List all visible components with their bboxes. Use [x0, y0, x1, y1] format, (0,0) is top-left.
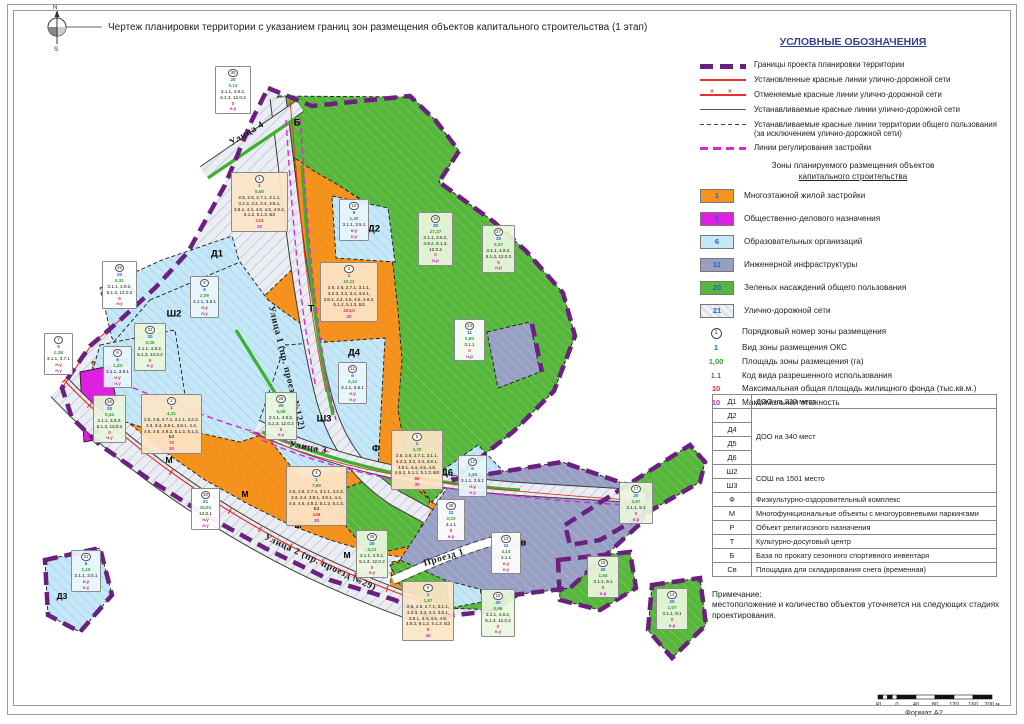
zone-callout: 115,502.5, 2.6, 2.7.1, 3.1.1, 3.2.3, 3.3…: [231, 172, 288, 232]
zone-callout: 29110,233.1.10н.р: [437, 499, 465, 541]
callout-max-floors: н.р: [439, 534, 463, 540]
dark-solid-line-sample: [700, 105, 746, 115]
callout-number: 5: [412, 433, 422, 442]
object-code: М: [713, 507, 752, 521]
legend-line-item: Линии регулирования застройки: [700, 143, 1006, 153]
legend: УСЛОВНЫЕ ОБОЗНАЧЕНИЯ Границы проекта пла…: [700, 36, 1006, 412]
legend-symbol: 1: [700, 343, 732, 352]
zone-label: Д4: [348, 348, 360, 359]
zone-swatch-20: 20: [700, 281, 734, 295]
callout-max-floors: н.у: [493, 567, 519, 573]
legend-symbol: 10: [700, 384, 732, 393]
zone-callout: 961,333.1.1, 3.5.1н.ун.у: [103, 346, 132, 388]
object-code: Р: [713, 521, 752, 535]
table-row: Ш2СОШ на 1501 место: [713, 465, 997, 479]
callout-max-floors: 30: [288, 518, 345, 524]
table-row: ТКультурно-досуговый центр: [713, 535, 997, 549]
object-code: Ш2: [713, 465, 752, 479]
callout-number: 22: [145, 326, 155, 335]
legend-line-label: Устанавливаемые красные линии улично-дор…: [754, 105, 960, 114]
callout-max-floors: н.у: [358, 570, 386, 576]
object-code: Ф: [713, 493, 752, 507]
object-desc: Объект религиозного назначения: [752, 521, 997, 535]
callout-number: 18: [431, 215, 441, 224]
callout-number: 19: [493, 592, 503, 601]
callout-number: 12: [468, 458, 478, 467]
zone-swatch-21: 21: [700, 304, 734, 318]
callout-use-codes: 2.5, 2.6, 2.7.1, 3.1.1, 3.2.3, 3.3, 3.4,…: [393, 453, 441, 477]
zone-callout: 13114,143.1.1н.ун.у: [491, 532, 521, 574]
object-desc: Площадка для складирования снега (времен…: [752, 563, 997, 577]
object-desc: ДОО на 340 мест: [752, 409, 997, 465]
callout-number: 3: [344, 265, 354, 274]
north-arrow-icon: N S: [48, 5, 102, 53]
callout-max-floors: н.у: [483, 629, 513, 635]
legend-zone-item: 5Общественно-делового назначения: [700, 212, 1006, 226]
zone-swatch-11: 11: [700, 258, 734, 272]
legend-line-label: Устанавливаемые красные линии территории…: [754, 120, 1006, 138]
zone-callout: 611,972.5, 2.6, 2.7.1, 3.1.1, 3.2.3, 3.3…: [402, 581, 454, 641]
callout-use-codes: 3.1.1, 3.6.2, 4.9.2, 5.1.3, 12.0.2: [420, 235, 451, 253]
legend-symbol-item: 1Вид зоны размещения ОКС: [700, 343, 1006, 353]
legend-zone-item: 6Образовательных организаций: [700, 235, 1006, 249]
zone-callout: 202115,8112.0.1н.ун.у: [191, 488, 220, 530]
callout-number: 15: [598, 559, 608, 568]
callout-max-floors: н.р: [589, 591, 617, 597]
callout-number: 16: [105, 398, 115, 407]
object-code: Д4: [713, 423, 752, 437]
legend-symbol-label: Максимальная общая площадь жилищного фон…: [742, 384, 976, 394]
object-code: Д1: [713, 395, 752, 409]
zone-callout: 28200,123.1.1, 4.9.2, 5.1.3, 12.0.20н.у: [356, 530, 388, 578]
legend-line-label: Установленные красные линии улично-дорож…: [754, 75, 951, 84]
zone-callout: 417,892.5, 2.6, 2.7.1, 3.1.1, 3.2.3, 3.3…: [286, 466, 347, 526]
zone-callout: 1061,303.1.1, 3.5.1н.ун.у: [339, 199, 369, 241]
zone-label: Ф: [372, 444, 380, 455]
drawing-sheet: N S 30200,133.1.1, 4.9.2, 5.1.3, 12.0.20…: [0, 0, 1024, 724]
legend-line-item: Устанавливаемые красные линии улично-дор…: [700, 105, 1006, 115]
legend-line-item: Устанавливаемые красные линии территории…: [700, 120, 1006, 138]
callout-number: 20: [201, 491, 211, 500]
callout-max-floors: н.у: [105, 381, 130, 387]
zone-callout: 24110,603.1.10н.р: [454, 319, 485, 361]
zone-label: Ш3: [317, 414, 332, 425]
object-code: Д6: [713, 451, 752, 465]
scalebar-label: 0: [895, 702, 898, 708]
object-code: Ш3: [713, 479, 752, 493]
legend-line-item: Установленные красные линии улично-дорож…: [700, 75, 1006, 85]
zone-callout: 19200,963.1.1, 4.9.2, 5.1.3, 12.0.20н.у: [481, 589, 515, 637]
callout-max-floors: н.у: [104, 301, 135, 307]
zone-label: М: [241, 489, 248, 499]
note-text: местоположение и количество объектов уто…: [712, 600, 1002, 621]
legend-zones-subtitle: Зоны планируемого размещения объектов ка…: [700, 161, 1006, 182]
callout-use-codes: 3.1.1, 4.9.2, 5.1.3, 12.0.2: [267, 415, 295, 427]
callout-max-floors: н.у: [217, 106, 249, 112]
zone-callout: 1164,133.1.1, 3.5.1н.ун.у: [338, 362, 367, 404]
callout-max-floors: 30: [143, 446, 200, 452]
callout-max-floors: н.у: [340, 397, 365, 403]
zone-callout: 22200,353.1.1, 4.9.2, 5.1.3, 12.0.20н.у: [134, 323, 166, 371]
legend-zone-label: Общественно-делового назначения: [744, 214, 880, 223]
callout-max-floors: н.у: [95, 435, 124, 441]
legend-zone-label: Инженерной инфраструктуры: [744, 260, 857, 269]
red-cross-line-sample: ××: [700, 90, 746, 100]
callout-number: 4: [312, 469, 322, 478]
scale-bar: 4004080120160200 м: [876, 692, 1016, 712]
zone-label: М: [165, 455, 172, 465]
legend-line-label: Отменяемые красные линии улично-дорожной…: [754, 90, 942, 99]
callout-max-floors: н.у: [193, 523, 218, 529]
black-dash-line-sample: [700, 120, 746, 130]
boundary-line-sample: [700, 60, 746, 70]
table-row: СвПлощадка для складирования снега (врем…: [713, 563, 997, 577]
zone-label: Ш2: [167, 309, 182, 320]
zone-callout: 214,312.5, 2.6, 2.7.1, 3.1.1, 3.2.3, 3.3…: [141, 394, 202, 454]
legend-symbol-item: 10Максимальная общая площадь жилищного ф…: [700, 384, 1006, 394]
callout-max-floors: н.р: [420, 258, 451, 264]
callout-use-codes: 2.5, 2.6, 2.7.1, 3.1.1, 3.2.3, 3.3, 3.4,…: [288, 489, 345, 513]
callout-number: 14: [667, 591, 677, 600]
callout-use-codes: 3.1.1, 4.9.2, 5.1.3, 12.0.2: [358, 553, 386, 565]
callout-number: 13: [501, 535, 511, 544]
legend-line-label: Линии регулирования застройки: [754, 143, 871, 152]
legend-symbol: 1: [700, 327, 732, 339]
callout-use-codes: 3.1.1, 3.5.1: [460, 478, 485, 484]
callout-number: 10: [349, 202, 359, 211]
object-desc: Культурно-досуговый центр: [752, 535, 997, 549]
legend-zone-item: 11Инженерной инфраструктуры: [700, 258, 1006, 272]
magenta-dash-line-sample: [700, 143, 746, 153]
legend-line-item: ××Отменяемые красные линии улично-дорожн…: [700, 90, 1006, 100]
callout-max-floors: н.у: [73, 585, 99, 591]
callout-max-floors: н.у: [341, 234, 367, 240]
callout-number: 26: [276, 395, 286, 404]
callout-use-codes: 3.1.1, 4.9.2, 5.1.3, 12.0.2: [217, 89, 249, 101]
callout-use-codes: 2.5, 2.6, 2.7.1, 3.1.1, 3.2.3, 3.3, 3.4,…: [404, 604, 452, 628]
object-code: Д5: [713, 437, 752, 451]
zone-callout: 513,702.5, 2.6, 2.7.1, 3.1.1, 3.2.3, 3.3…: [391, 430, 443, 490]
callout-use-codes: 3.1.1, 4.9.2, 5.1.3, 12.0.2: [104, 284, 135, 296]
callout-max-floors: 20: [233, 224, 286, 230]
callout-number: 24: [465, 322, 475, 331]
zone-callout: 26200,063.1.1, 4.9.2, 5.1.3, 12.0.20н.у: [265, 392, 297, 440]
callout-max-floors: н.у: [46, 368, 71, 374]
zone-callout: 27200,373.1.1, 4.9.2, 5.1.3, 12.0.20н.р: [482, 225, 515, 273]
legend-symbol-item: 1,00Площадь зоны размещения (га): [700, 357, 1006, 367]
callout-max-floors: 30: [393, 482, 441, 488]
callout-use-codes: 3.1.1, 3.5.1: [105, 369, 130, 375]
callout-number: 17: [631, 485, 641, 494]
legend-zone-label: Зеленых насаждений общего пользования: [744, 283, 906, 292]
legend-symbol-item: 1.1Код вида разрешенного использования: [700, 371, 1006, 381]
legend-zone-items: 1Многоэтажной жилой застройки5Общественн…: [700, 189, 1006, 318]
zone-callout: 30200,133.1.1, 4.9.2, 5.1.3, 12.0.20н.у: [215, 66, 251, 114]
legend-symbol-label: Код вида разрешенного использования: [742, 371, 892, 381]
table-row: Д1ДОО на 220 мест: [713, 395, 997, 409]
legend-zone-label: Улично-дорожной сети: [744, 306, 831, 315]
objects-table: Д1ДОО на 220 местД2ДОО на 340 местД4Д5Д6…: [712, 394, 997, 577]
legend-symbol-label: Порядковый номер зоны размещения: [742, 327, 886, 337]
zone-swatch-1: 1: [700, 189, 734, 203]
scalebar-label: 200 м: [984, 702, 999, 708]
zone-label: Д3: [57, 591, 68, 601]
legend-line-items: Границы проекта планировки территорииУст…: [700, 60, 1006, 153]
legend-title: УСЛОВНЫЕ ОБОЗНАЧЕНИЯ: [700, 36, 1006, 48]
callout-use-codes: 3.1.1, 4.9.2, 5.1.3, 12.0.2: [136, 346, 164, 358]
svg-text:N: N: [53, 5, 57, 11]
zone-label: Т: [308, 304, 314, 315]
zone-callout: 750,383.1.1, 3.7.1н.ун.у: [44, 333, 73, 375]
table-row: РОбъект религиозного назначения: [713, 521, 997, 535]
callout-number: 28: [367, 533, 377, 542]
legend-zone-item: 21Улично-дорожной сети: [700, 304, 1006, 318]
callout-use-codes: 2.5, 2.6, 2.7.1, 3.1.1, 3.2.3, 3.3, 3.4,…: [233, 195, 286, 219]
callout-max-floors: н.р: [456, 354, 483, 360]
callout-use-codes: 3.1.1, 3.5.1: [73, 573, 99, 579]
callout-number: 1: [255, 175, 265, 184]
object-code: Св: [713, 563, 752, 577]
callout-max-floors: н.р: [658, 623, 686, 629]
callout-number: 2: [167, 397, 177, 406]
callout-number: 8: [200, 279, 210, 288]
callout-use-codes: 3.1.1, 3.7.1: [46, 356, 71, 362]
zone-callout: 3110,112.5, 2.6, 2.7.1, 3.1.1, 3.2.3, 3.…: [320, 262, 378, 322]
callout-use-codes: 2.5, 2.6, 2.7.1, 3.1.1, 3.2.3, 3.3, 3.4,…: [322, 285, 376, 309]
object-code: Д2: [713, 409, 752, 423]
page-title: Чертеж планировки территории с указанием…: [108, 22, 708, 33]
zone-label: Б: [294, 118, 301, 129]
callout-number: 29: [446, 502, 456, 511]
callout-number: 7: [54, 336, 64, 345]
callout-max-floors: н.р: [484, 265, 513, 271]
callout-number: 9: [113, 349, 123, 358]
scalebar-label: 40: [876, 702, 881, 708]
zone-callout: 25200,313.1.1, 4.9.2, 5.1.3, 12.0.20н.у: [102, 261, 137, 309]
zone-callout: 3161,103.1.1, 3.5.1н.ун.у: [71, 550, 101, 592]
callout-use-codes: 3.1.1, 3.5.1: [340, 385, 365, 391]
callout-number: 11: [348, 365, 358, 374]
callout-use-codes: 3.1.1, 9.1: [658, 611, 686, 617]
callout-use-codes: 3.1.1, 9.1: [589, 579, 617, 585]
table-row: ММногофункциональные объекты с многоуров…: [713, 507, 997, 521]
zone-label: М: [343, 550, 350, 560]
callout-max-floors: н.у: [460, 490, 485, 496]
red-solid-line-sample: [700, 75, 746, 85]
callout-max-floors: н.у: [267, 432, 295, 438]
legend-zone-item: 20Зеленых насаждений общего пользования: [700, 281, 1006, 295]
legend-symbol: 1.1: [700, 371, 732, 380]
table-row: Д2ДОО на 340 мест: [713, 409, 997, 423]
zone-swatch-6: 6: [700, 235, 734, 249]
svg-text:S: S: [54, 47, 58, 53]
callout-use-codes: 3.1.1, 4.9.2, 5.1.3, 12.0.2: [95, 418, 124, 430]
format-label: Формат А2: [905, 708, 943, 717]
callout-max-floors: 30: [322, 314, 376, 320]
callout-number: 6: [423, 584, 433, 593]
callout-max-floors: 45: [404, 633, 452, 639]
callout-use-codes: 3.1.1, 4.9.2, 5.1.3, 12.0.2: [484, 248, 513, 260]
zone-callout: 14201,073.1.1, 9.10н.р: [656, 588, 688, 630]
scalebar-label: 120: [949, 702, 959, 708]
zone-callout: 862,093.1.1, 3.5.1н.ун.у: [190, 276, 219, 318]
zone-label: Д1: [211, 249, 223, 260]
note-title: Примечание:: [712, 590, 1002, 600]
object-desc: СОШ на 1501 место: [752, 465, 997, 493]
table-row: ББаза по прокату сезонного спортивного и…: [713, 549, 997, 563]
note: Примечание: местоположение и количество …: [712, 590, 1002, 621]
callout-number: 31: [81, 553, 91, 562]
legend-zone-label: Многоэтажной жилой застройки: [744, 191, 865, 200]
legend-zone-label: Образовательных организаций: [744, 237, 862, 246]
object-code: Т: [713, 535, 752, 549]
legend-line-label: Границы проекта планировки территории: [754, 60, 904, 69]
callout-use-codes: 3.1.1, 3.5.1: [341, 222, 367, 228]
zone-callout: 1261,293.1.1, 3.5.1н.ун.у: [458, 455, 487, 497]
legend-symbol: 1,00: [700, 357, 732, 366]
object-desc: Физкультурно-оздоровительный комплекс: [752, 493, 997, 507]
legend-symbol-item: 1Порядковый номер зоны размещения: [700, 327, 1006, 339]
callout-number: 30: [228, 69, 238, 78]
legend-zone-item: 1Многоэтажной жилой застройки: [700, 189, 1006, 203]
callout-use-codes: 2.5, 2.6, 2.7.1, 3.1.1, 3.2.3, 3.3, 3.4,…: [143, 417, 200, 441]
callout-max-floors: н.р: [621, 517, 651, 523]
object-desc: База по прокату сезонного спортивного ин…: [752, 549, 997, 563]
object-desc: Многофункциональные объекты с многоуровн…: [752, 507, 997, 521]
zone-callout: 15201,543.1.1, 9.10н.р: [587, 556, 619, 598]
zone-callout: 17202,673.1.1, 9.10н.р: [619, 482, 653, 524]
zone-swatch-5: 5: [700, 212, 734, 226]
table-row: ФФизкультурно-оздоровительный комплекс: [713, 493, 997, 507]
zone-label: Д2: [368, 224, 380, 235]
callout-number: 25: [115, 264, 125, 273]
zone-callout: 182027,373.1.1, 3.6.2, 4.9.2, 5.1.3, 12.…: [418, 212, 453, 266]
callout-use-codes: 3.1.1, 4.9.2, 5.1.3, 12.0.2: [483, 612, 513, 624]
callout-max-floors: н.у: [136, 363, 164, 369]
legend-symbol-label: Площадь зоны размещения (га): [742, 357, 864, 367]
zone-callout: 16200,443.1.1, 4.9.2, 5.1.3, 12.0.20н.у: [93, 395, 126, 443]
callout-number: 27: [494, 228, 504, 237]
legend-symbol-label: Вид зоны размещения ОКС: [742, 343, 847, 353]
scalebar-label: 160: [968, 702, 978, 708]
callout-max-floors: н.у: [192, 311, 217, 317]
object-code: Б: [713, 549, 752, 563]
object-desc: ДОО на 220 мест: [752, 395, 997, 409]
callout-use-codes: 3.1.1, 3.5.1: [192, 299, 217, 305]
legend-line-item: Границы проекта планировки территории: [700, 60, 1006, 70]
